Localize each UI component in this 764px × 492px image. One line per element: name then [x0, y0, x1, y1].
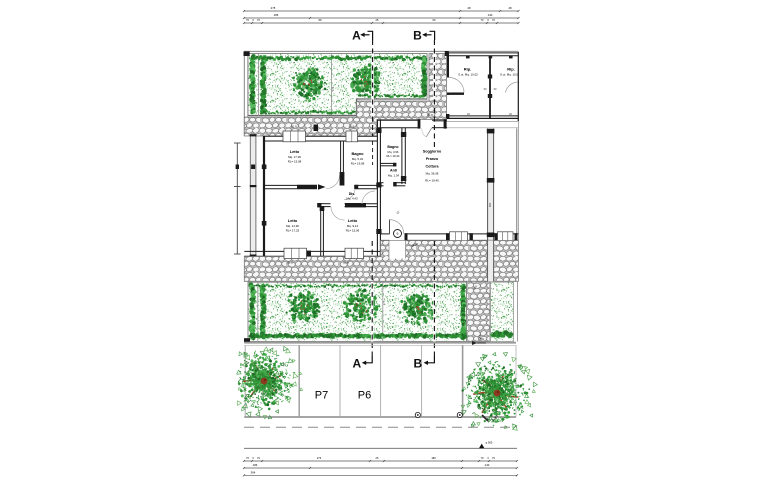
svg-text:P6: P6 [358, 390, 371, 402]
svg-text:186: 186 [253, 463, 258, 467]
svg-text:Dis.: Dis. [349, 192, 356, 196]
svg-text:B1.B: B1.B [349, 125, 355, 129]
svg-text:140: 140 [488, 13, 493, 17]
svg-text:Mq. 1,34: Mq. 1,34 [388, 173, 399, 177]
svg-text:B1.B: B1.B [343, 261, 349, 265]
svg-text:273: 273 [317, 456, 322, 460]
svg-text:Bagno: Bagno [351, 151, 364, 156]
svg-text:A: A [352, 356, 361, 370]
svg-text:P7: P7 [315, 390, 328, 402]
svg-text:28: 28 [467, 6, 471, 10]
svg-text:1,5%: 1,5% [478, 337, 485, 341]
svg-text:A: A [352, 29, 361, 43]
svg-text:9: 9 [397, 232, 399, 236]
svg-text:Anti: Anti [390, 169, 397, 173]
svg-text:186: 186 [274, 13, 279, 17]
svg-text:B1.8: B1.8 [427, 113, 433, 117]
svg-text:Rip.: Rip. [464, 67, 472, 72]
svg-text:Rip.: Rip. [507, 67, 515, 72]
svg-text:Bagno: Bagno [387, 145, 399, 149]
svg-text:S.ut. Mq. 10,02: S.ut. Mq. 10,02 [458, 73, 478, 77]
svg-text:140: 140 [485, 463, 490, 467]
svg-text:Cottura: Cottura [425, 165, 439, 169]
svg-text:RL= 15,08: RL= 15,08 [288, 159, 302, 163]
svg-text:B: B [413, 29, 422, 43]
svg-text:275: 275 [271, 6, 276, 10]
svg-text:RL= 19,08: RL= 19,08 [351, 161, 365, 165]
svg-text:q.365: q.365 [486, 441, 493, 445]
svg-text:B1.B: B1.B [291, 125, 297, 129]
svg-text:RL= 19,44: RL= 19,44 [387, 154, 400, 158]
svg-text:B1.B: B1.B [287, 261, 293, 265]
svg-text:Pranzo: Pranzo [426, 157, 439, 161]
svg-text:Mq. 4,43: Mq. 4,43 [346, 197, 358, 201]
svg-text:Letto: Letto [288, 218, 298, 223]
svg-text:RL= 19,40: RL= 19,40 [425, 179, 439, 183]
svg-text:180: 180 [431, 456, 436, 460]
svg-text:B: B [413, 356, 422, 370]
svg-text:Mq. 36,08: Mq. 36,08 [426, 172, 439, 176]
svg-text:Letto: Letto [290, 149, 300, 154]
svg-text:364: 364 [251, 470, 256, 474]
svg-text:Soggiorno: Soggiorno [423, 150, 442, 154]
svg-text:RL= 15,06: RL= 15,06 [346, 228, 360, 232]
svg-text:Letto: Letto [348, 218, 358, 223]
svg-text:28: 28 [508, 6, 512, 10]
svg-text:S.ut. Mq. 10,5: S.ut. Mq. 10,5 [500, 73, 518, 77]
svg-text:RL= 17,25: RL= 17,25 [286, 228, 300, 232]
svg-text:360: 360 [488, 202, 492, 207]
